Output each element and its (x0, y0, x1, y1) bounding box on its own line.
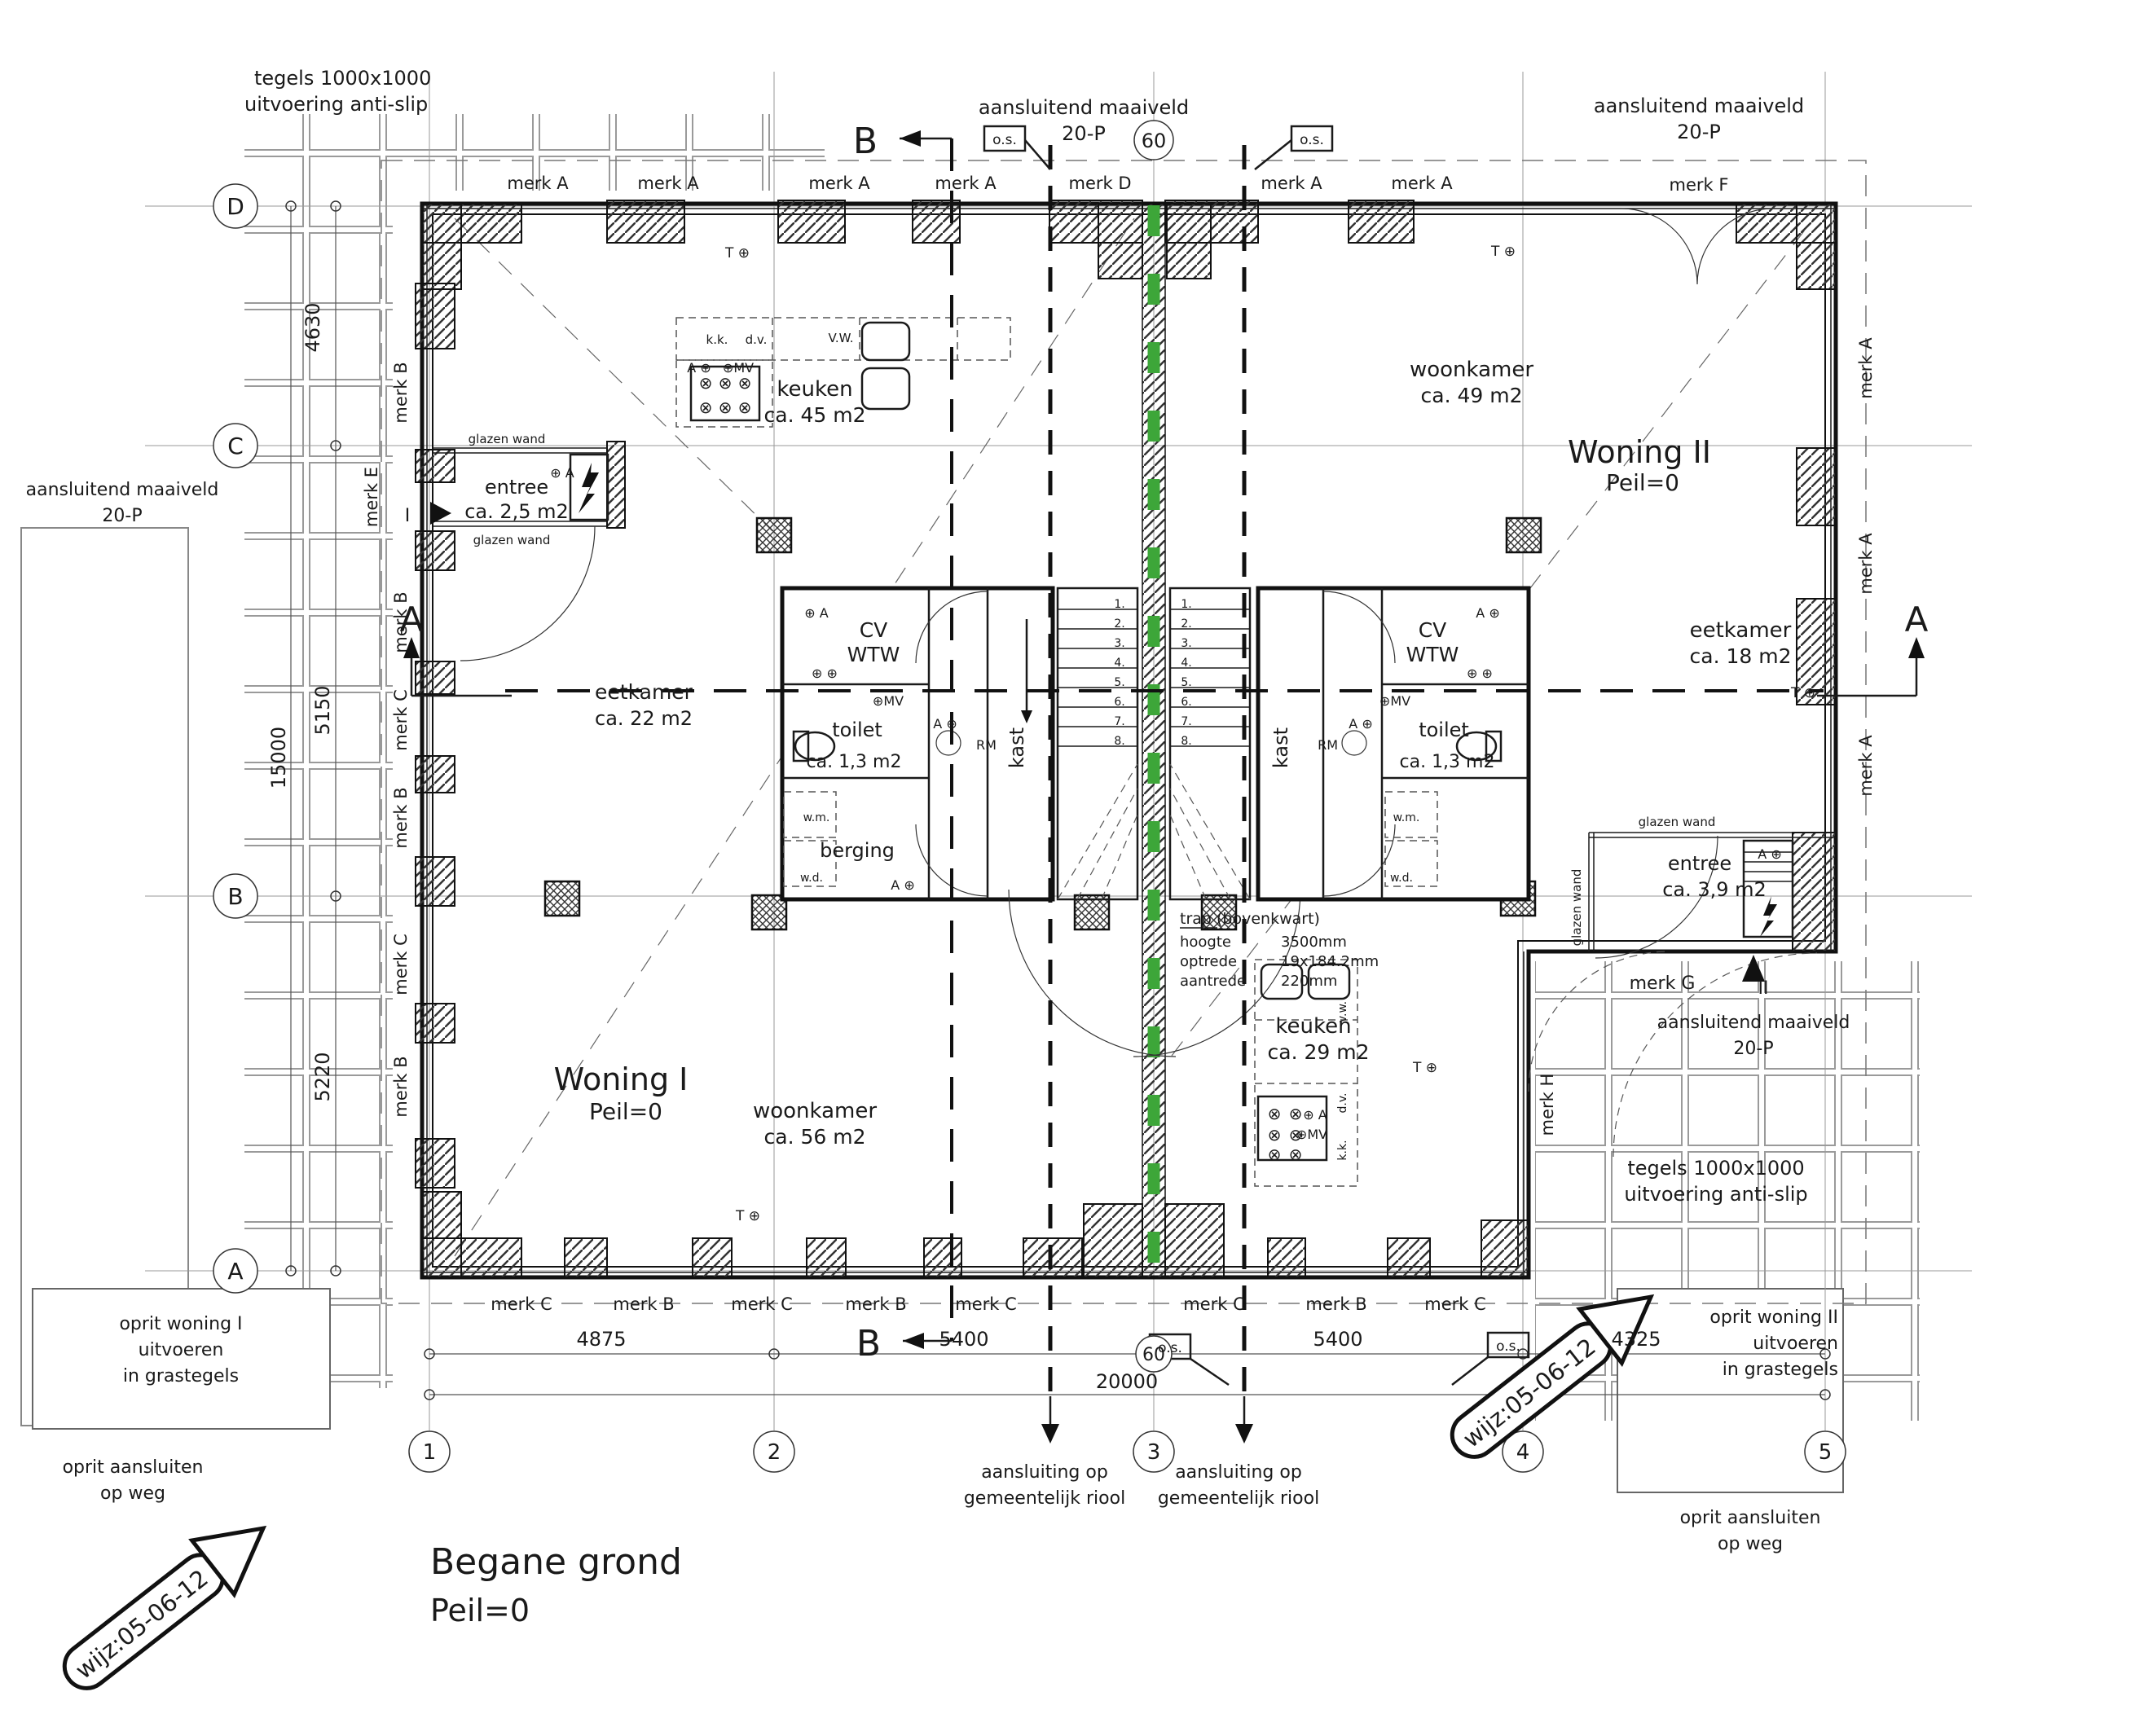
burner-icon: ⊗ (1289, 1104, 1303, 1123)
wm-label: w.m. (1393, 811, 1420, 824)
svg-text:3.: 3. (1114, 637, 1124, 650)
meterkast-lightning-icon (1760, 896, 1777, 937)
rm-label: RM (1318, 737, 1338, 753)
woning2-peil: Peil=0 (1606, 469, 1679, 496)
grid-col-5: 5 (1819, 1440, 1833, 1465)
merk-right-1: merk A (1856, 337, 1876, 399)
oprit2-line3: in grastegels (1723, 1360, 1838, 1380)
kast2-label: kast (1269, 727, 1292, 768)
room-eetkamer2-area: ca. 18 m2 (1690, 644, 1792, 668)
floorplan-sheet: ⊗ ⊗ ⊗ ⊗ ⊗ ⊗ (0, 0, 2156, 1727)
burner-icon: ⊗ (719, 373, 733, 393)
vent-symbol: A ⊕ (1349, 716, 1372, 732)
trap-hoogte-value: 3500mm (1281, 934, 1347, 951)
tile-paving (244, 114, 1920, 1421)
svg-text:4.: 4. (1181, 657, 1191, 670)
os-label: o.s. (992, 132, 1017, 148)
riser-60-bottom: 60 (1142, 1345, 1165, 1365)
oprit-weg-right-1: oprit aansluiten (1680, 1508, 1821, 1528)
glazen-wand-label: glazen wand (473, 533, 551, 547)
svg-text:2.: 2. (1181, 617, 1191, 631)
drawing-title-peil: Peil=0 (430, 1593, 530, 1628)
merk-left-5: merk C (391, 934, 411, 995)
merk-top-3: merk A (808, 174, 870, 193)
vent-symbol: ⊕ ⊕ (812, 666, 838, 681)
grid-col-4: 4 (1516, 1440, 1530, 1465)
room-woonkamer1: woonkamer (753, 1099, 877, 1123)
riool-arrow-icon (1235, 1424, 1253, 1444)
cv-label: CV (860, 618, 888, 642)
grid-col-2: 2 (768, 1440, 781, 1465)
merk-top-d: merk D (1068, 174, 1131, 193)
riool-note-2: aansluiting op (1175, 1462, 1302, 1483)
section-b-label-bottom: B (856, 1323, 881, 1364)
merk-right-3: merk A (1856, 735, 1876, 797)
room-keuken1-area: ca. 45 m2 (764, 403, 866, 427)
merk-bot-4: merk B (845, 1294, 906, 1314)
burner-icon: ⊗ (1268, 1145, 1282, 1164)
room-eetkamer1-area: ca. 22 m2 (595, 707, 693, 730)
merk-right-2: merk A (1856, 533, 1876, 595)
toilet1-area: ca. 1,3 m2 (807, 752, 902, 772)
kitchen-kk-label: k.k. (706, 332, 728, 347)
merk-f: merk F (1670, 175, 1729, 195)
merk-left-2: merk B (391, 591, 411, 653)
glazen-wand-label: glazen wand (1639, 815, 1716, 829)
sink-icon (862, 323, 909, 360)
riool-note-1b: gemeentelijk riool (964, 1488, 1125, 1509)
trap-aantrede-value: 220mm (1281, 973, 1337, 990)
burner-icon: ⊗ (1268, 1104, 1282, 1123)
dim-5150: 5150 (311, 685, 334, 735)
tiles-note-topleft: tegels 1000x1000 (254, 67, 431, 90)
vent-symbol: ⊕ A (1303, 1107, 1327, 1123)
thermostat-symbol: T ⊕ (1490, 244, 1516, 260)
wd-label: w.d. (800, 872, 823, 885)
thermostat-symbol: T ⊕ (1790, 685, 1815, 701)
svg-text:8.: 8. (1181, 735, 1191, 748)
svg-text:3.: 3. (1181, 637, 1191, 650)
wm-label: w.m. (803, 811, 830, 824)
room-eetkamer2: eetkamer (1690, 618, 1792, 643)
merk-left-3: merk C (391, 689, 411, 751)
riool-note-1: aansluiting op (981, 1462, 1108, 1483)
riser-60-top: 60 (1142, 130, 1167, 152)
trap-title: trap (bovenkwart) (1180, 910, 1320, 928)
maaiveld-entree2-2: 20-P (1733, 1039, 1773, 1059)
core-right (1258, 588, 1529, 899)
entree2-marker-label: II (1758, 978, 1769, 999)
woning1-peil: Peil=0 (589, 1098, 662, 1125)
room-entree2-area: ca. 3,9 m2 (1662, 878, 1767, 901)
dim-4630: 4630 (301, 302, 324, 352)
woning1-name: Woning I (554, 1061, 689, 1097)
room-entree2: entree (1668, 852, 1731, 875)
svg-text:5.: 5. (1114, 676, 1124, 689)
dim-5400a: 5400 (939, 1328, 988, 1351)
svg-text:8.: 8. (1114, 735, 1124, 748)
merk-left-6: merk B (391, 1056, 411, 1117)
riool-arrow-icon (1041, 1424, 1059, 1444)
svg-text:1.: 1. (1181, 598, 1191, 611)
svg-text:5.: 5. (1181, 676, 1191, 689)
grid-row-c: C (227, 433, 244, 459)
vent-symbol: ⊕ A (550, 465, 574, 481)
svg-text:6.: 6. (1181, 696, 1191, 709)
kitchen-dv-label: d.v. (746, 332, 768, 347)
dim-4875: 4875 (576, 1328, 626, 1351)
kitchen-kk-label: k.k. (1336, 1140, 1349, 1160)
grid-row-a: A (227, 1258, 243, 1285)
merk-e: merk E (362, 467, 381, 527)
room-woonkamer2: woonkamer (1410, 358, 1533, 382)
section-b-label-top: B (853, 121, 878, 162)
toilet2-label: toilet (1419, 718, 1469, 741)
vent-symbol: ⊕MV (1296, 1127, 1327, 1142)
svg-text:7.: 7. (1181, 715, 1191, 728)
room-entree1-area: ca. 2,5 m2 (464, 500, 569, 523)
merk-top-1: merk A (507, 174, 569, 193)
maaiveld-top-2: 20-P (1062, 122, 1106, 145)
wd-label: w.d. (1390, 872, 1413, 885)
oprit-weg-left-2: op weg (100, 1483, 165, 1504)
tiles-note-right2: uitvoering anti-slip (1624, 1183, 1807, 1206)
trap-hoogte-label: hoogte (1180, 934, 1231, 951)
revision-label: wijz:05-06-12 (70, 1564, 213, 1685)
grid-row-b: B (227, 883, 243, 910)
berging-label: berging (820, 839, 895, 862)
vent-symbol: A ⊕ (933, 716, 957, 732)
merk-left-4: merk B (391, 787, 411, 848)
merk-h: merk H (1538, 1074, 1557, 1136)
room-keuken2-area: ca. 29 m2 (1268, 1040, 1370, 1064)
svg-text:4.: 4. (1114, 657, 1124, 670)
merk-bot-6: merk C (1183, 1294, 1245, 1314)
dim-4325: 4325 (1611, 1328, 1661, 1351)
kitchen-vw-label: V.W. (829, 331, 854, 345)
merk-g: merk G (1630, 973, 1696, 994)
burner-icon: ⊗ (738, 398, 752, 417)
meterkast-lightning-icon (579, 463, 599, 513)
dim-5220: 5220 (311, 1052, 334, 1101)
tiles-note-topleft2: uitvoering anti-slip (244, 93, 428, 116)
toilet1-label: toilet (832, 718, 882, 741)
section-a-label-right: A (1905, 600, 1929, 639)
oprit2-line1: oprit woning II (1709, 1307, 1838, 1328)
dim-20000: 20000 (1096, 1370, 1158, 1393)
svg-text:6.: 6. (1114, 696, 1124, 709)
merk-bot-5: merk C (955, 1294, 1017, 1314)
grid-col-1: 1 (423, 1440, 437, 1465)
glazen-wand-label: glazen wand (469, 432, 546, 446)
dim-5400b: 5400 (1313, 1328, 1362, 1351)
thermostat-symbol: T ⊕ (724, 245, 750, 261)
oprit1-line1: oprit woning I (119, 1314, 242, 1334)
svg-text:2.: 2. (1114, 617, 1124, 631)
burner-icon: ⊗ (719, 398, 733, 417)
merk-top-2: merk A (637, 174, 699, 193)
vent-symbol: ⊕ ⊕ (1467, 666, 1493, 681)
woning2-name: Woning II (1568, 434, 1711, 470)
floorplan-drawing: ⊗ ⊗ ⊗ ⊗ ⊗ ⊗ (0, 0, 2156, 1727)
thermostat-symbol: T ⊕ (735, 1208, 760, 1224)
merk-bot-8: merk C (1424, 1294, 1486, 1314)
merk-bot-7: merk B (1305, 1294, 1366, 1314)
kitchen-vw-label: v.w. (1336, 1001, 1349, 1022)
rm-label: RM (976, 737, 997, 753)
vent-symbol: A ⊕ (687, 360, 711, 376)
maaiveld-topright: aansluitend maaiveld (1594, 94, 1804, 117)
kitchen-dv-label: d.v. (1336, 1093, 1349, 1114)
entree1-marker-label: I (405, 506, 411, 526)
merk-bot-1: merk C (491, 1294, 552, 1314)
burner-icon: ⊗ (1268, 1125, 1282, 1145)
sink-icon (862, 368, 909, 409)
wtw-label: WTW (847, 643, 900, 666)
dim-15000: 15000 (267, 727, 290, 789)
maaiveld-top: aansluitend maaiveld (979, 96, 1189, 119)
maaiveld-left-2: 20-P (102, 506, 142, 526)
svg-text:7.: 7. (1114, 715, 1124, 728)
trap-optrede-label: optrede (1180, 953, 1237, 970)
merk-bot-2: merk B (613, 1294, 674, 1314)
room-woonkamer2-area: ca. 49 m2 (1421, 384, 1523, 407)
vent-symbol: A ⊕ (1758, 846, 1781, 862)
revision-arrow-left: wijz:05-06-12 (48, 1501, 284, 1707)
kast1-label: kast (1005, 727, 1028, 768)
os-label: o.s. (1496, 1338, 1520, 1355)
merk-top-4: merk A (935, 174, 997, 193)
burner-icon: ⊗ (1289, 1145, 1303, 1164)
room-woonkamer1-area: ca. 56 m2 (764, 1125, 866, 1149)
os-label: o.s. (1300, 132, 1324, 148)
trap-aantrede-label: aantrede (1180, 973, 1246, 990)
party-wall (1142, 204, 1165, 1277)
stair-numbers-left: 1.2. 3.4. 5.6. 7.8. (1114, 598, 1124, 748)
burner-icon: ⊗ (699, 373, 713, 393)
merk-top-5: merk A (1261, 174, 1322, 193)
thermostat-symbol: T ⊕ (1412, 1060, 1437, 1076)
section-b-arrow-top (900, 130, 921, 147)
toilet2-area: ca. 1,3 m2 (1400, 752, 1495, 772)
room-entree1: entree (485, 476, 548, 499)
section-a-arrow-right (1908, 637, 1925, 658)
merk-top-6: merk A (1391, 174, 1453, 193)
merk-left-1: merk B (391, 362, 411, 423)
grid-row-d: D (227, 193, 244, 220)
cv-label: CV (1419, 618, 1447, 642)
burner-icon: ⊗ (699, 398, 713, 417)
burner-icon: ⊗ (738, 373, 752, 393)
maaiveld-entree2: aansluitend maaiveld (1657, 1013, 1850, 1033)
vent-symbol: ⊕MV (873, 693, 904, 709)
grid-col-3: 3 (1147, 1440, 1161, 1465)
room-keuken1: keuken (777, 377, 852, 402)
riool-note-2b: gemeentelijk riool (1158, 1488, 1319, 1509)
vent-symbol: ⊕ A (804, 605, 828, 621)
maaiveld-left: aansluitend maaiveld (26, 480, 219, 500)
stair-numbers-right: 1.2. 3.4. 5.6. 7.8. (1181, 598, 1191, 748)
vent-symbol: A ⊕ (1476, 605, 1499, 621)
section-b-arrow-bottom (903, 1333, 924, 1349)
room-eetkamer1: eetkamer (595, 680, 693, 704)
wtw-label: WTW (1406, 643, 1459, 666)
oprit1-line2: uitvoeren (139, 1340, 224, 1360)
drawing-title: Begane grond (430, 1541, 682, 1583)
oprit-weg-left-1: oprit aansluiten (63, 1457, 204, 1478)
vent-symbol: ⊕MV (1379, 693, 1410, 709)
oprit1-line3: in grastegels (123, 1366, 239, 1386)
tiles-note-right: tegels 1000x1000 (1627, 1157, 1804, 1180)
maaiveld-topright-2: 20-P (1677, 121, 1721, 143)
glazen-wand-label: glazen wand (1569, 869, 1584, 947)
trap-optrede-value: 19x184.2mm (1281, 953, 1379, 970)
svg-text:1.: 1. (1114, 598, 1124, 611)
oprit2-line2: uitvoeren (1753, 1334, 1838, 1354)
vent-symbol: A ⊕ (891, 877, 914, 893)
vent-symbol: ⊕MV (723, 360, 754, 376)
oprit-weg-right-2: op weg (1718, 1534, 1783, 1554)
merk-bot-3: merk C (731, 1294, 793, 1314)
